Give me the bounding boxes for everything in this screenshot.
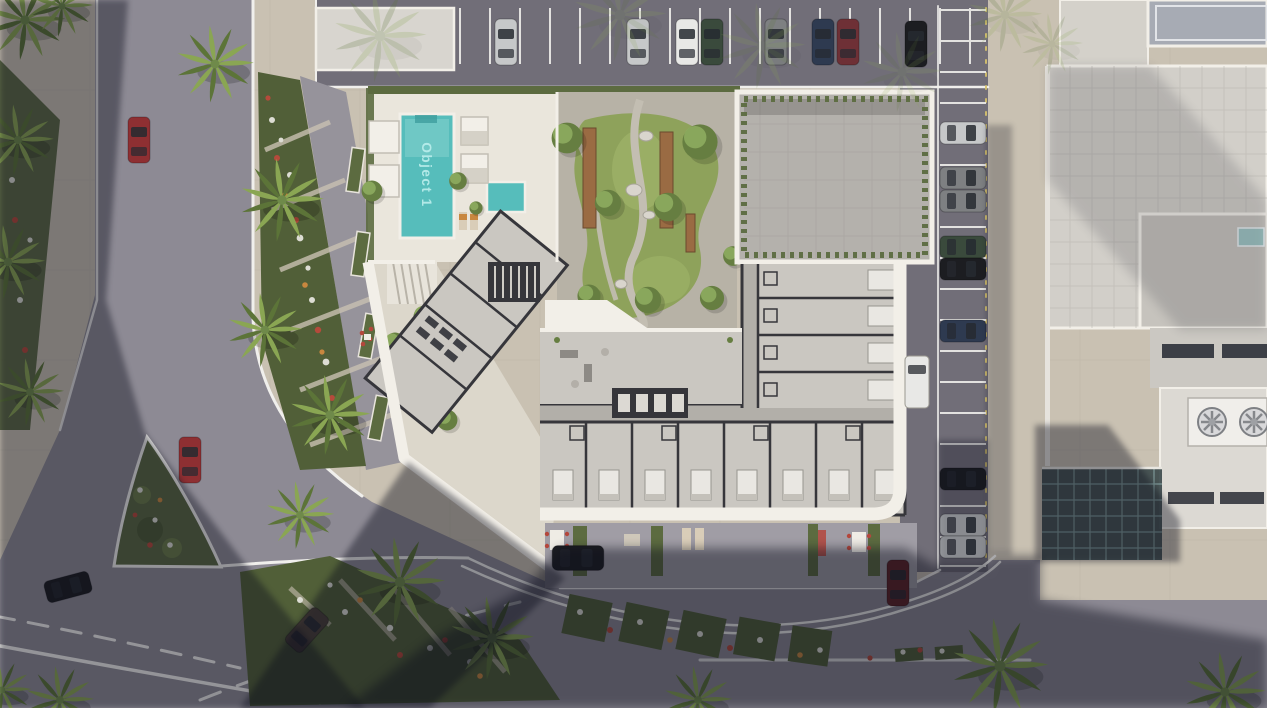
- roof-block: [737, 92, 932, 262]
- car: [940, 167, 986, 189]
- pool-label: Object 1: [419, 142, 434, 207]
- car: [940, 258, 986, 280]
- car: [495, 19, 517, 65]
- hvac-fan: [1198, 408, 1226, 436]
- car-red-junction: [179, 437, 201, 483]
- aerial-render: Object 1: [0, 0, 1267, 708]
- scene-canvas: Object 1: [0, 0, 1267, 708]
- car: [701, 19, 723, 65]
- roof-vent: [1220, 492, 1264, 504]
- car: [837, 19, 859, 65]
- roof-vent: [1168, 492, 1214, 504]
- courtyard-garden: [545, 92, 746, 330]
- car: [676, 19, 698, 65]
- car: [940, 320, 986, 342]
- floorplan-south-wing: [540, 404, 905, 515]
- car: [940, 190, 986, 212]
- kids-pool: [487, 182, 525, 212]
- car: [940, 236, 986, 258]
- pool-steps: [415, 115, 437, 123]
- swimming-pool: Object 1: [400, 114, 454, 238]
- roof-slot: [1162, 344, 1214, 358]
- car: [812, 19, 834, 65]
- elevator-core: [612, 388, 688, 418]
- stairwell: [488, 262, 540, 302]
- roof-slot: [1222, 344, 1267, 358]
- van-inner-road: [905, 356, 929, 408]
- car: [940, 122, 986, 144]
- car-red-north: [128, 117, 150, 163]
- hvac-fan: [1240, 408, 1267, 436]
